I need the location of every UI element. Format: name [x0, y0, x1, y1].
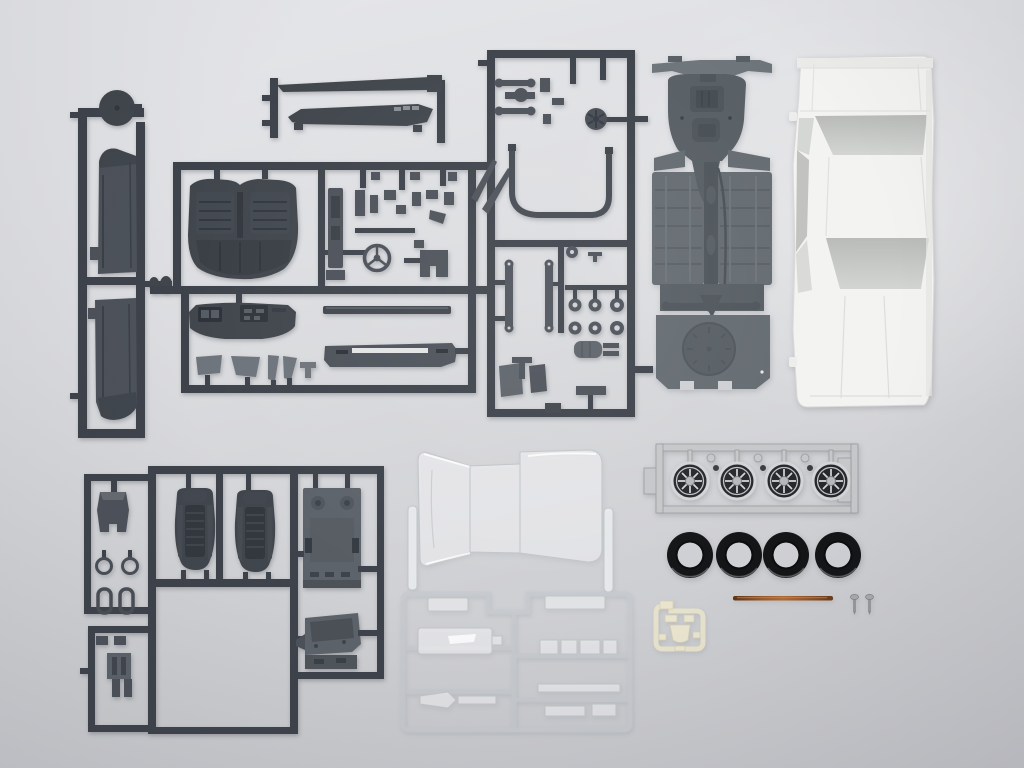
rear-window-opening: [826, 238, 929, 289]
spare-wheel-disc: [99, 90, 142, 126]
tire: [815, 532, 861, 578]
leaf-springs: [495, 247, 564, 333]
suspension-arm-parts: [495, 78, 565, 124]
wheel-sprue: [644, 444, 858, 513]
interior-sprue: [150, 162, 490, 393]
kit-parts-canvas: [0, 0, 1024, 768]
cooling-fan: [585, 108, 628, 130]
engine-sprue: [471, 50, 653, 417]
tire: [763, 532, 809, 578]
tires: [667, 532, 861, 578]
center-console-part: [326, 188, 345, 280]
screws: [851, 594, 874, 615]
axle-rod: [733, 596, 833, 601]
floor-plate-part: [296, 474, 378, 588]
rear-bench-seat: [188, 179, 298, 279]
clear-sprue: [403, 594, 630, 730]
tire: [667, 532, 713, 578]
engine-sump: [668, 74, 746, 161]
pillar-trim-parts: [196, 355, 316, 387]
lower-frame-strip: [288, 104, 433, 132]
upper-frame-strip: [277, 75, 442, 92]
seat-sprue: [80, 466, 384, 734]
ring-parts: [97, 550, 138, 574]
tire: [716, 532, 762, 578]
mirror-tab: [789, 112, 797, 121]
lower-bracket-part: [296, 613, 378, 669]
hub-rings: [565, 285, 631, 335]
muffler: [574, 341, 619, 358]
screw: [866, 594, 874, 615]
screw: [851, 594, 859, 615]
side-panel-sprue: [70, 90, 172, 438]
mirror-tab: [789, 357, 797, 367]
console-tunnel-part: [97, 481, 129, 532]
bucket-seat: [235, 474, 275, 581]
lens-part: [656, 601, 703, 651]
window-frame-sprue: [262, 75, 445, 143]
chassis-plate: [652, 56, 772, 390]
steering-wheel: [365, 246, 390, 271]
clear-glass: [408, 450, 613, 592]
body-shell: [789, 56, 934, 407]
bucket-seat: [175, 474, 215, 580]
rear-axle: [660, 284, 764, 318]
rear-bumper: [324, 343, 469, 367]
rocker-panel-right: [88, 298, 137, 420]
small-bracket-parts: [80, 636, 132, 697]
model-kit-photo: [0, 0, 1024, 768]
sill-bar: [323, 306, 451, 314]
dashboard: [189, 294, 296, 339]
bracket-plates: [499, 357, 606, 413]
trunk-floor-spare-well: [656, 315, 770, 390]
windshield-opening: [815, 115, 927, 155]
